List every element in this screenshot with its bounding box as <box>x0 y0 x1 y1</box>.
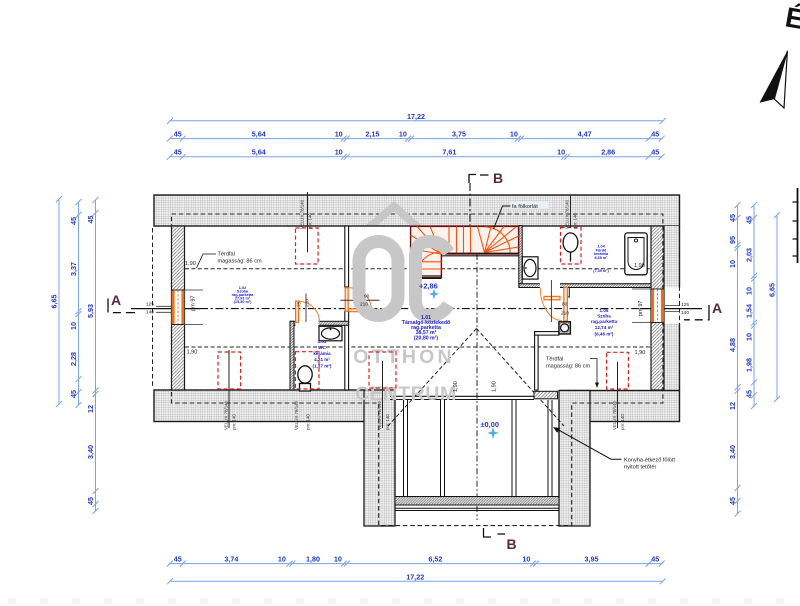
svg-text:1,80: 1,80 <box>306 554 320 563</box>
svg-text:45: 45 <box>651 148 659 157</box>
svg-text:VELUX 78/140: VELUX 78/140 <box>294 400 299 430</box>
svg-text:4,47: 4,47 <box>578 129 592 138</box>
svg-text:3,74: 3,74 <box>224 554 238 563</box>
svg-text:6,52: 6,52 <box>428 554 442 563</box>
svg-text:10: 10 <box>745 287 754 295</box>
svg-text:45: 45 <box>728 214 737 222</box>
svg-text:B: B <box>493 170 503 186</box>
svg-text:4,21 m²: 4,21 m² <box>314 357 330 362</box>
svg-text:12: 12 <box>728 402 737 410</box>
svg-text:1,90: 1,90 <box>635 350 646 356</box>
svg-text:1,90: 1,90 <box>185 261 196 267</box>
svg-text:4,88: 4,88 <box>728 338 737 352</box>
svg-text:+2,86: +2,86 <box>419 282 438 291</box>
svg-text:10: 10 <box>510 129 518 138</box>
svg-text:magasság: 86 cm: magasság: 86 cm <box>218 259 262 265</box>
svg-text:17,22: 17,22 <box>407 112 425 121</box>
svg-text:10: 10 <box>334 554 342 563</box>
svg-text:10: 10 <box>557 148 565 157</box>
svg-text:10: 10 <box>522 554 530 563</box>
svg-text:10: 10 <box>335 148 343 157</box>
svg-text:45: 45 <box>86 216 95 224</box>
svg-text:80: 80 <box>562 302 568 308</box>
svg-text:1,90: 1,90 <box>492 381 498 392</box>
svg-text:fa fölkorlát: fa fölkorlát <box>512 204 538 210</box>
svg-text:magasság: 86 cm: magasság: 86 cm <box>546 364 590 370</box>
svg-text:Szoba: Szoba <box>597 314 611 319</box>
svg-text:5,64: 5,64 <box>252 129 266 138</box>
svg-text:17,22: 17,22 <box>406 572 424 581</box>
svg-text:A: A <box>712 300 722 316</box>
svg-text:nyitott tetőtér: nyitott tetőtér <box>624 465 656 471</box>
svg-text:2,86: 2,86 <box>601 148 615 157</box>
svg-text:12: 12 <box>86 405 95 413</box>
svg-text:10: 10 <box>278 554 286 563</box>
svg-text:8,65 m²: 8,65 m² <box>594 256 608 260</box>
svg-text:pm: 140: pm: 140 <box>308 213 313 229</box>
svg-text:3,95: 3,95 <box>585 554 599 563</box>
svg-text:45: 45 <box>745 390 754 398</box>
svg-text:10: 10 <box>745 333 754 341</box>
svg-text:45: 45 <box>174 129 182 138</box>
svg-text:1,54: 1,54 <box>745 304 754 318</box>
svg-text:125: 125 <box>681 302 689 308</box>
svg-text:kerámia: kerámia <box>313 351 331 356</box>
svg-text:Térdfal: Térdfal <box>546 357 563 363</box>
svg-text:pm 97: pm 97 <box>638 300 644 316</box>
svg-text:1,90: 1,90 <box>634 263 645 269</box>
svg-text:VELUX 78/140: VELUX 78/140 <box>612 400 617 430</box>
svg-text:10: 10 <box>399 129 407 138</box>
svg-text:10: 10 <box>69 322 78 330</box>
svg-text:10: 10 <box>728 260 737 268</box>
svg-text:WC: WC <box>318 345 326 350</box>
svg-text:45: 45 <box>728 497 737 505</box>
svg-text:rag.parketta: rag.parketta <box>591 319 618 324</box>
svg-text:140: 140 <box>146 310 154 316</box>
svg-text:1.05: 1.05 <box>600 308 609 313</box>
svg-text:45: 45 <box>174 554 182 563</box>
svg-text:VELUX 78/140: VELUX 78/140 <box>224 400 229 430</box>
svg-text:5,64: 5,64 <box>252 148 266 157</box>
svg-text:1,90: 1,90 <box>453 381 459 392</box>
svg-text:140: 140 <box>681 310 689 316</box>
svg-text:CENTRUM: CENTRUM <box>355 383 457 405</box>
svg-text:Konyha-étkező fölött: Konyha-étkező fölött <box>624 458 675 464</box>
svg-text:7,61: 7,61 <box>442 148 456 157</box>
svg-text:210: 210 <box>305 299 311 307</box>
svg-text:45: 45 <box>69 217 78 225</box>
svg-text:A: A <box>111 292 121 308</box>
svg-text:Térdfal: Térdfal <box>218 252 235 258</box>
svg-text:45: 45 <box>745 216 754 224</box>
svg-text:(15,30 m²): (15,30 m²) <box>234 300 252 304</box>
svg-text:(6,46 m²): (6,46 m²) <box>595 332 614 337</box>
svg-text:(1,37 m²): (1,37 m²) <box>313 364 332 369</box>
svg-text:6,65: 6,65 <box>768 283 777 297</box>
svg-text:125: 125 <box>146 302 154 308</box>
svg-text:95: 95 <box>728 236 737 244</box>
svg-text:pm: 140: pm: 140 <box>232 414 237 430</box>
svg-text:10: 10 <box>335 129 343 138</box>
svg-text:12,74 m²: 12,74 m² <box>595 325 614 330</box>
svg-text:5,93: 5,93 <box>86 304 95 318</box>
svg-text:pm: 140: pm: 140 <box>306 414 311 430</box>
svg-text:2,28: 2,28 <box>69 352 78 366</box>
svg-text:45: 45 <box>174 148 182 157</box>
svg-text:2,03: 2,03 <box>745 248 754 262</box>
svg-text:45: 45 <box>651 129 659 138</box>
svg-text:210: 210 <box>561 311 569 317</box>
svg-text:pm: 140: pm: 140 <box>620 414 625 430</box>
svg-text:1,90: 1,90 <box>187 350 198 356</box>
svg-text:VELUX 78/140: VELUX 78/140 <box>300 199 305 229</box>
svg-text:45: 45 <box>86 497 95 505</box>
svg-text:45: 45 <box>651 554 659 563</box>
svg-text:3,40: 3,40 <box>728 445 737 459</box>
svg-text:45: 45 <box>69 390 78 398</box>
svg-text:90: 90 <box>364 294 370 300</box>
svg-text:(20,80 m²): (20,80 m²) <box>414 335 438 341</box>
svg-text:3,40: 3,40 <box>86 445 95 459</box>
svg-text:210: 210 <box>360 302 368 308</box>
svg-text:6,65: 6,65 <box>50 295 59 309</box>
svg-text:VELUX 78/140: VELUX 78/140 <box>565 199 570 229</box>
svg-text:pm: 140: pm: 140 <box>573 213 578 229</box>
svg-text:75: 75 <box>297 301 303 307</box>
svg-text:1.03: 1.03 <box>318 339 327 344</box>
svg-text:B: B <box>507 536 517 552</box>
svg-text:2,15: 2,15 <box>365 129 379 138</box>
svg-text:3,75: 3,75 <box>452 129 466 138</box>
svg-text:pm: 140: pm: 140 <box>385 414 390 430</box>
svg-text:pm 97: pm 97 <box>191 295 197 311</box>
svg-text:3,37: 3,37 <box>69 262 78 276</box>
svg-text:VELUX 78/140: VELUX 78/140 <box>377 400 382 430</box>
svg-text:1,98: 1,98 <box>745 358 754 372</box>
svg-text:±0,00: ±0,00 <box>481 420 499 429</box>
svg-text:(7,39 m²): (7,39 m²) <box>593 269 609 273</box>
